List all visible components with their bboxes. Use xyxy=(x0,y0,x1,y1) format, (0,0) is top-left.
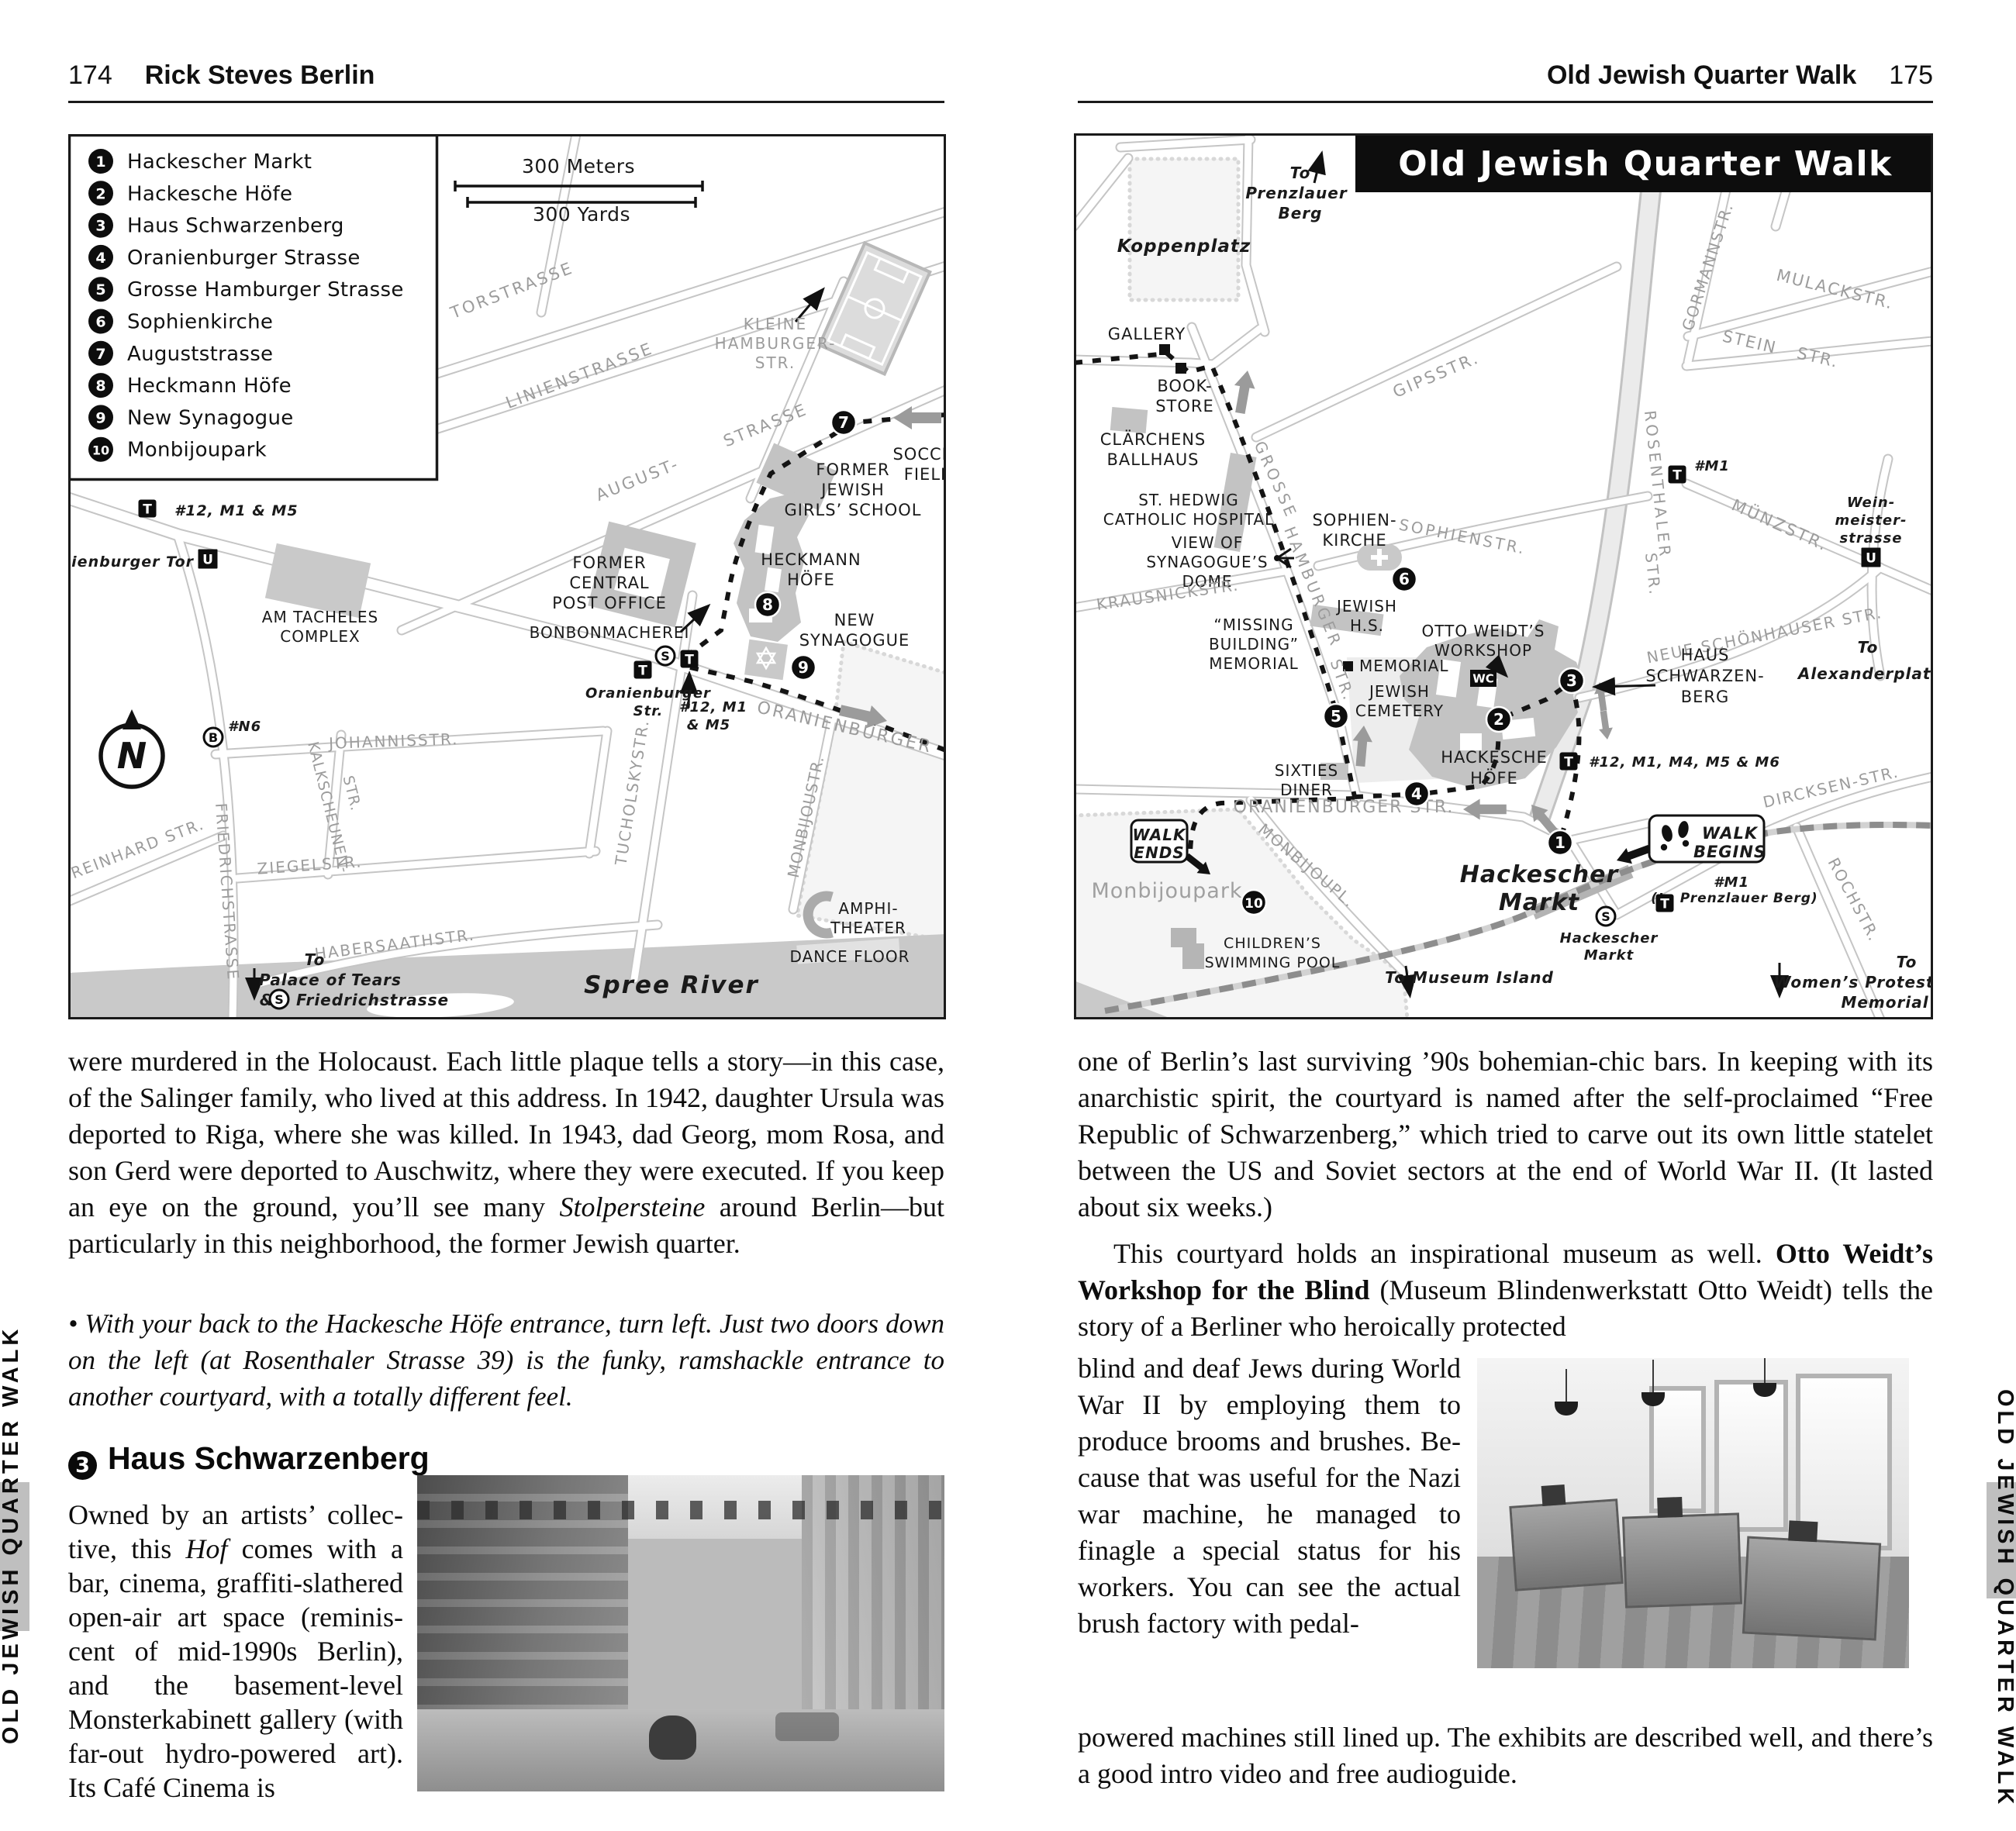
svg-text:T: T xyxy=(685,653,694,668)
svg-text:7: 7 xyxy=(95,346,105,363)
svg-text:9: 9 xyxy=(798,658,809,677)
header-rule-left xyxy=(68,101,944,103)
legend-label: Oranienburger Strasse xyxy=(127,247,361,270)
legend-label: Auguststrasse xyxy=(127,343,273,366)
text-segment: Hof xyxy=(185,1533,227,1564)
square-label: Koppenplatz xyxy=(1117,236,1251,257)
walk-begins-label: BEGINS xyxy=(1693,843,1766,861)
photo-detail xyxy=(1742,1536,1881,1641)
svg-text:WC: WC xyxy=(1472,672,1494,686)
otto-weidt-museum-photo xyxy=(1477,1358,1909,1668)
poi-label: HÖFE xyxy=(787,570,835,589)
poi-label: HAUS xyxy=(1681,646,1730,664)
poi-label: SOPHIEN- xyxy=(1312,511,1396,529)
direction-note: To xyxy=(1290,164,1311,182)
poi-label: SCHWARZEN- xyxy=(1645,667,1764,685)
street-label: KRAUSNICKSTR. xyxy=(1095,575,1240,614)
square-label: Markt xyxy=(1499,889,1580,916)
svg-text:T: T xyxy=(1673,468,1682,484)
poi-label: JEWISH xyxy=(820,481,885,499)
legend-label: Hackesche Höfe xyxy=(127,182,292,205)
street-label: FRIEDRICHSTRASSE xyxy=(212,802,243,981)
direction-note: To xyxy=(305,950,326,969)
poi-label: CENTRAL xyxy=(569,574,649,592)
section-heading: 3Haus Schwarzenberg xyxy=(68,1440,430,1480)
park-label: Monbijoupark xyxy=(1091,879,1242,903)
square-label: Hackescher xyxy=(1460,861,1620,888)
page-number: 174 xyxy=(68,60,112,90)
poi-label: HECKMANN xyxy=(761,550,861,569)
s-transit-icon: S xyxy=(270,990,288,1009)
t-transit-icon: T xyxy=(1656,895,1674,912)
transit-note: #M1 xyxy=(1694,458,1730,474)
street-label: AUGUST- xyxy=(593,454,682,505)
transit-note: #12, M1, M4, M5 & M6 xyxy=(1589,754,1780,771)
poi-label: SWIMMING POOL xyxy=(1205,954,1341,971)
stop-marker-5: 5 xyxy=(1324,704,1348,729)
legend-label: New Synagogue xyxy=(127,406,294,429)
station-label: Str. xyxy=(633,703,664,719)
poi-label: H.S. xyxy=(1350,616,1384,635)
street-label: STEIN xyxy=(1721,326,1779,357)
svg-text:S: S xyxy=(1601,909,1610,924)
page-header-left: 174Rick Steves Berlin xyxy=(68,60,375,91)
poi-label: NEW xyxy=(834,611,875,629)
svg-text:1: 1 xyxy=(1555,833,1566,852)
s-transit-icon: S xyxy=(656,647,675,665)
poi-label: VIEW OF xyxy=(1172,533,1244,552)
am-tacheles-building xyxy=(265,543,371,618)
paragraph: Owned by an artists’ collec­tive, this H… xyxy=(68,1498,403,1805)
poi-label: AMPHI- xyxy=(838,899,898,918)
svg-text:3: 3 xyxy=(95,218,105,235)
svg-text:B: B xyxy=(209,730,218,745)
poi-label: COMPLEX xyxy=(280,627,361,646)
poi-label: JEWISH xyxy=(1368,682,1430,701)
transit-note: & M5 xyxy=(687,717,730,733)
svg-text:U: U xyxy=(202,553,213,568)
poi-label: GALLERY xyxy=(1108,325,1186,343)
map-title: Old Jewish Quarter Walk xyxy=(1398,144,1893,184)
station-label: Hackescher xyxy=(1560,930,1659,947)
poi-label: HACKESCHE xyxy=(1441,748,1548,767)
stop-marker-7: 7 xyxy=(831,410,856,435)
poi-label: WORKSHOP xyxy=(1434,641,1532,660)
street-label: MÜNZSTR. xyxy=(1729,495,1832,554)
svg-text:9: 9 xyxy=(95,409,105,426)
text-segment: Stolpersteine xyxy=(559,1191,705,1222)
poi-label: POST OFFICE xyxy=(552,594,667,612)
svg-text:5: 5 xyxy=(95,281,105,298)
transit-note: #N6 xyxy=(228,719,261,735)
map-right: ToPrenzlauerBergKoppenplatzGALLERYBOOK-S… xyxy=(1074,133,1933,1019)
poi-label: ST. HEDWIG xyxy=(1138,491,1239,509)
walk-ends-label: WALK xyxy=(1132,826,1186,844)
poi-label: KIRCHE xyxy=(1322,531,1386,550)
poi-label: SIXTIES xyxy=(1275,761,1338,780)
street-label: KLEINE xyxy=(744,315,807,333)
legend-label: Grosse Hamburger Strasse xyxy=(127,278,404,302)
paragraph: This courtyard holds an inspirational mu… xyxy=(1078,1236,1933,1345)
poi-label: BERG xyxy=(1681,688,1730,706)
transit-note: #M1 xyxy=(1714,874,1749,891)
poi-label: MEMORIAL xyxy=(1209,654,1299,673)
guidebook-spread: { "header_left":{"num":"174","title":"Ri… xyxy=(0,0,2016,1791)
poi-label: SOCCER xyxy=(892,445,946,464)
poi-label: MEMORIAL xyxy=(1359,657,1449,675)
svg-text:4: 4 xyxy=(95,250,105,267)
street-label: HAMBURGER- xyxy=(715,334,837,353)
river-label: Spree River xyxy=(584,971,759,999)
pointer-arrow xyxy=(1597,685,1655,687)
street-label: TUCHOLSKYSTR. xyxy=(611,718,653,867)
haus-schwarzenberg-photo xyxy=(417,1475,944,1791)
section-number-badge: 3 xyxy=(68,1451,97,1480)
svg-text:T: T xyxy=(638,664,647,679)
poi-label: FIELD xyxy=(904,465,946,484)
walk-direction-arrow xyxy=(1230,369,1258,416)
poi-label: THEATER xyxy=(830,919,906,937)
claerchens-ballhaus-building xyxy=(1110,407,1148,433)
poi-label: DINER xyxy=(1280,781,1333,799)
svg-text:7: 7 xyxy=(838,413,849,432)
legend-label: Heckmann Höfe xyxy=(127,374,292,398)
station-label: Markt xyxy=(1584,947,1635,964)
station-label: Oranienburger Tor xyxy=(68,553,195,571)
svg-text:N: N xyxy=(117,735,147,777)
book-title: Rick Steves Berlin xyxy=(145,60,375,90)
map-title-bar: Old Jewish Quarter Walk xyxy=(1355,133,1933,192)
legend-item: 5Grosse Hamburger Strasse xyxy=(88,277,404,302)
station-label: meister- xyxy=(1835,512,1907,529)
poi-label: SYNAGOGUE xyxy=(799,631,910,650)
svg-text:1: 1 xyxy=(95,153,105,171)
street-label: STR. xyxy=(755,353,796,372)
poi-label: CLÄRCHENS xyxy=(1100,429,1206,449)
svg-text:3: 3 xyxy=(1566,671,1577,690)
photo-detail xyxy=(1622,1512,1742,1608)
street-label: GROSSE xyxy=(1251,438,1302,522)
compass-icon: N xyxy=(101,709,163,787)
poi-label: FORMER xyxy=(572,553,646,572)
photo-detail xyxy=(1714,1380,1789,1532)
street-label: STRASSE xyxy=(720,400,810,450)
direction-note: Berg xyxy=(1279,204,1323,222)
t-transit-icon: T xyxy=(681,650,699,668)
legend-label: Haus Schwarzenberg xyxy=(127,215,344,238)
new-synagogue-building xyxy=(744,640,788,681)
svg-text:S: S xyxy=(661,649,670,664)
direction-note: Friedrichstrasse xyxy=(296,991,449,1009)
s-transit-icon: S xyxy=(1597,907,1615,926)
stop-marker-10: 10 xyxy=(1241,890,1266,915)
walk-ends-label: ENDS xyxy=(1134,843,1184,862)
svg-text:6: 6 xyxy=(95,314,105,331)
scale-yards-label: 300 Yards xyxy=(533,203,630,226)
map-left: N 1Hackescher Markt2Hackesche Höfe3Haus … xyxy=(68,134,946,1019)
poi-label: BUILDING” xyxy=(1209,635,1299,653)
stop-marker-2: 2 xyxy=(1486,707,1511,732)
stop-marker-3: 3 xyxy=(1559,668,1584,693)
legend-item: 4Oranienburger Strasse xyxy=(88,245,361,270)
svg-text:10: 10 xyxy=(92,443,109,458)
walk-begins-label: WALK xyxy=(1702,824,1759,843)
paragraph: were murdered in the Holocaust. Each lit… xyxy=(68,1043,944,1262)
direction-note: Women’s Protest xyxy=(1773,973,1933,991)
svg-text:5: 5 xyxy=(1331,707,1341,726)
stop-marker-4: 4 xyxy=(1404,781,1429,806)
transit-note: #12, M1 xyxy=(679,699,747,716)
b-transit-icon: B xyxy=(204,728,223,747)
svg-text:8: 8 xyxy=(762,595,773,614)
soccer-field xyxy=(820,243,930,374)
svg-text:10: 10 xyxy=(1244,896,1263,912)
direction-note: To xyxy=(1897,953,1918,971)
text-segment: comes with a bar, cinema, graffiti-slath… xyxy=(68,1533,403,1803)
svg-text:T: T xyxy=(143,502,152,518)
station-label: strasse xyxy=(1840,530,1903,547)
street-label: STR. xyxy=(1641,552,1665,598)
svg-text:2: 2 xyxy=(95,185,105,202)
poi-label: AM TACHELES xyxy=(262,608,378,626)
svg-text:T: T xyxy=(1564,755,1573,771)
transit-note: (to Prenzlauer Berg) xyxy=(1651,891,1818,906)
street-label: STR. xyxy=(340,774,365,812)
poi-label: CATHOLIC HOSPITAL xyxy=(1103,510,1274,529)
direction-note: To xyxy=(1858,638,1879,657)
stop-marker-6: 6 xyxy=(1392,567,1417,591)
svg-text:6: 6 xyxy=(1399,570,1410,588)
poi-label: DANCE FLOOR xyxy=(790,947,910,966)
street-label: GORMANNSTR. xyxy=(1678,200,1737,333)
direction-note: Prenzlauer xyxy=(1245,184,1348,202)
legend-item: 3Haus Schwarzenberg xyxy=(88,213,344,238)
direction-note: Alexanderplatz xyxy=(1797,664,1933,683)
sidebar-label-left: OLD JEWISH QUARTER WALK xyxy=(0,1271,33,1798)
poi-label: STORE xyxy=(1155,397,1214,416)
paragraph: blind and deaf Jews dur­ing World War II… xyxy=(1078,1350,1461,1642)
photo-detail xyxy=(649,1715,696,1760)
header-rule-right xyxy=(1078,101,1933,103)
t-transit-icon: T xyxy=(634,661,652,679)
svg-text:U: U xyxy=(1866,551,1876,567)
svg-text:T: T xyxy=(1660,897,1669,912)
koppenplatz-park xyxy=(1130,159,1238,300)
poi-label: SYNAGOGUE’S xyxy=(1146,553,1268,571)
poi-label: FORMER xyxy=(816,460,889,479)
section-heading-text: Haus Schwarzenberg xyxy=(108,1440,430,1476)
u-transit-icon: U xyxy=(1862,548,1881,567)
poi-label: OTTO WEIDT’S xyxy=(1422,622,1545,640)
sidebar-label-right: OLD JEWISH QUARTER WALK xyxy=(1983,1366,2016,1831)
poi-label: “MISSING xyxy=(1213,616,1293,634)
pointer-arrow xyxy=(1314,155,1321,183)
walking-directions: • With your back to the Hackesche Höfe e… xyxy=(68,1305,944,1415)
legend-label: Hackescher Markt xyxy=(127,150,312,174)
poi-label: BOOK- xyxy=(1157,377,1212,395)
chapter-title: Old Jewish Quarter Walk xyxy=(1547,60,1856,90)
page-number: 175 xyxy=(1889,60,1933,90)
direction-note: Palace of Tears xyxy=(259,971,402,989)
poi-label: CEMETERY xyxy=(1355,702,1444,720)
stop-marker-9: 9 xyxy=(791,655,816,680)
scale-meters-label: 300 Meters xyxy=(522,155,635,178)
stop-marker-8: 8 xyxy=(755,592,780,617)
wc-transit-icon: WC xyxy=(1470,670,1496,687)
poi-label: GIRLS’ SCHOOL xyxy=(785,501,922,519)
poi-label: BALLHAUS xyxy=(1106,450,1199,469)
map-legend: 1Hackescher Markt2Hackesche Höfe3Haus Sc… xyxy=(70,136,437,480)
svg-text:4: 4 xyxy=(1411,784,1422,803)
direction-note: Memorial xyxy=(1841,993,1928,1012)
paragraph: one of Berlin’s last surviving ’90s bohe… xyxy=(1078,1043,1933,1226)
t-transit-icon: T xyxy=(1669,466,1686,484)
page-header-right: Old Jewish Quarter Walk175 xyxy=(1078,60,1933,91)
walk-direction-arrow xyxy=(1597,710,1614,740)
photo-detail xyxy=(775,1712,839,1741)
street-label: TORSTRASSE xyxy=(447,258,577,322)
poi-label: JEWISH xyxy=(1335,597,1397,616)
poi-label: CHILDREN’S xyxy=(1224,935,1321,952)
legend-label: Monbijoupark xyxy=(127,439,267,462)
street-label: JOHANNISSTR. xyxy=(327,729,459,753)
svg-text:8: 8 xyxy=(95,378,105,395)
photo-detail xyxy=(1509,1498,1623,1591)
text-segment: This courtyard holds an inspirational mu… xyxy=(1113,1238,1776,1269)
photo-detail xyxy=(417,1501,944,1519)
u-transit-icon: U xyxy=(198,550,218,569)
direction-note: To Museum Island xyxy=(1385,968,1554,987)
street-label: ROSENTHALER xyxy=(1641,409,1675,560)
legend-label: Sophienkirche xyxy=(127,311,273,334)
svg-text:2: 2 xyxy=(1493,710,1504,729)
stop-marker-1: 1 xyxy=(1548,830,1572,855)
station-label: Wein- xyxy=(1847,495,1895,511)
transit-note: #12, M1 & M5 xyxy=(174,502,299,519)
paragraph: powered machines still lined up. The exh… xyxy=(1078,1719,1933,1792)
t-transit-icon: T xyxy=(139,500,157,518)
svg-text:S: S xyxy=(274,992,284,1007)
poi-label: BONBONMACHEREI xyxy=(530,623,690,642)
poi-label: HÖFE xyxy=(1470,768,1518,788)
t-transit-icon: T xyxy=(1560,753,1578,771)
